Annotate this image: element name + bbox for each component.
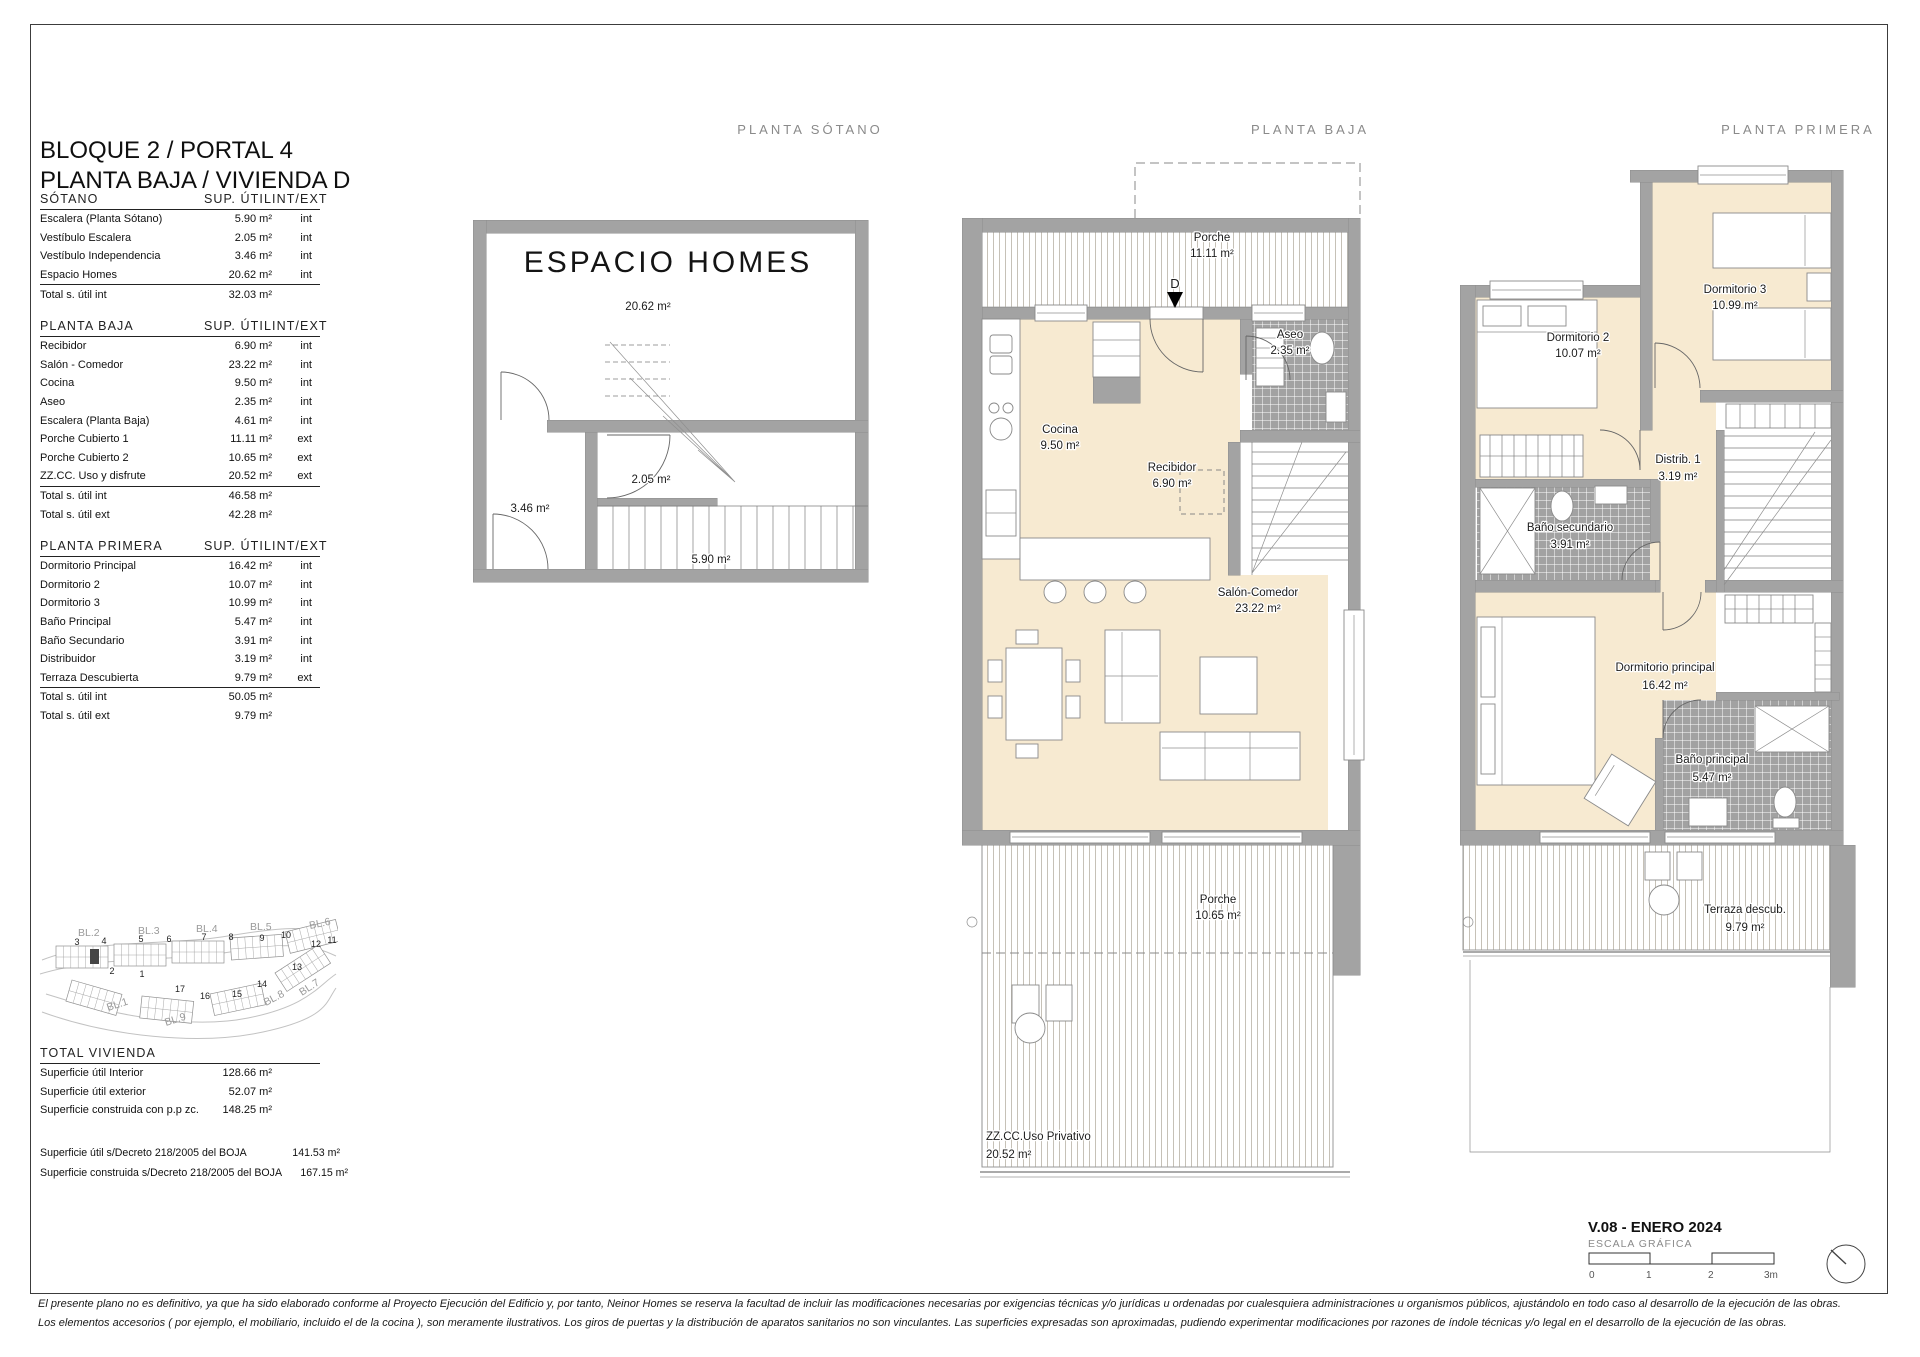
table-total-row: Total s. útil ext42.28 m²	[40, 505, 320, 524]
room-label-porche1: Porche	[1194, 232, 1230, 244]
block-label: BL.8	[262, 988, 287, 1009]
area-espacio-homes: 20.62 m²	[625, 301, 671, 313]
room-label-distrib: Distrib. 1	[1655, 454, 1700, 466]
svg-text:3: 3	[74, 937, 79, 947]
section-header-primera: PLANTA PRIMERA SUP. ÚTIL INT/EXT	[40, 539, 320, 557]
primera-closets	[1725, 404, 1831, 692]
block-label: BL.2	[78, 927, 100, 939]
section-header-baja: PLANTA BAJA SUP. ÚTIL INT/EXT	[40, 319, 320, 337]
block-label: BL.4	[196, 923, 218, 935]
room-label-espacio-homes: ESPACIO HOMES	[524, 246, 813, 279]
table-row: Porche Cubierto 111.11 m²ext	[40, 430, 320, 449]
table-row: Espacio Homes20.62 m²int	[40, 266, 320, 285]
room-area-recibidor: 6.90 m²	[1153, 478, 1192, 490]
room-label-aseo: Aseo	[1277, 329, 1303, 341]
room-label-porche2: Porche	[1200, 894, 1236, 906]
room-area-bano-sec: 3.91 m²	[1551, 539, 1590, 551]
section-header-total: TOTAL VIVIENDA	[40, 1046, 320, 1064]
room-area-porche1: 11.11 m²	[1190, 248, 1234, 260]
table-row: Porche Cubierto 210.65 m²ext	[40, 449, 320, 468]
table-row: ZZ.CC. Uso y disfrute20.52 m²ext	[40, 467, 320, 486]
svg-text:1: 1	[139, 969, 144, 979]
room-area-distrib: 3.19 m²	[1659, 471, 1698, 483]
room-area-dorm-ppal: 16.42 m²	[1642, 680, 1688, 692]
room-area-salon: 23.22 m²	[1235, 603, 1281, 615]
room-label-terraza: Terraza descub.	[1704, 904, 1786, 916]
table-row: Dormitorio 210.07 m²int	[40, 576, 320, 595]
area-vestibulo-independencia: 3.46 m²	[511, 503, 550, 515]
total-vivienda-table: TOTAL VIVIENDA Superficie útil Interior1…	[40, 1046, 320, 1120]
room-label-dorm2: Dormitorio 2	[1547, 332, 1610, 344]
sotano-stair-dashes	[605, 342, 735, 482]
table-row: Baño Principal5.47 m²int	[40, 613, 320, 632]
room-label-salon: Salón-Comedor	[1218, 587, 1299, 599]
table-row: Superficie útil exterior52.07 m²	[40, 1083, 320, 1102]
sheet-title: BLOQUE 2 / PORTAL 4 PLANTA BAJA / VIVIEN…	[40, 136, 350, 196]
section-header-sotano: SÓTANO SUP. ÚTIL INT/EXT	[40, 192, 320, 210]
table-row: Escalera (Planta Baja)4.61 m²int	[40, 411, 320, 430]
plan-header-baja: PLANTA BAJA	[1195, 122, 1425, 137]
section-title: SÓTANO	[40, 192, 202, 206]
table-row: Recibidor6.90 m²int	[40, 337, 320, 356]
col-sup-util: SUP. ÚTIL	[202, 539, 272, 553]
table-row: Aseo2.35 m²int	[40, 393, 320, 412]
plan-header-sotano: PLANTA SÓTANO	[695, 122, 925, 137]
table-total-row: Total s. útil int50.05 m²	[40, 687, 320, 707]
room-area-cocina: 9.50 m²	[1041, 440, 1080, 452]
room-area-zzcc: 20.52 m²	[986, 1149, 1032, 1161]
svg-text:14: 14	[257, 979, 267, 989]
svg-text:11: 11	[327, 935, 336, 945]
scale-tick-3: 3m	[1764, 1270, 1778, 1281]
primera-stairs	[1724, 432, 1831, 585]
svg-text:10: 10	[281, 930, 291, 940]
room-area-porche2: 10.65 m²	[1195, 910, 1241, 922]
dorm2-furniture	[1477, 300, 1597, 477]
table-row: Vestíbulo Independencia3.46 m²int	[40, 247, 320, 266]
table-total-row: Total s. útil int32.03 m²	[40, 284, 320, 304]
table-row: Dormitorio Principal16.42 m²int	[40, 557, 320, 576]
table-row: Superficie construida con p.p zc.148.25 …	[40, 1101, 320, 1120]
svg-text:4: 4	[101, 936, 106, 946]
room-area-aseo: 2.35 m²	[1271, 345, 1310, 357]
table-row: Terraza Descubierta9.79 m²ext	[40, 668, 320, 687]
table-row: Vestíbulo Escalera2.05 m²int	[40, 229, 320, 248]
svg-text:9: 9	[259, 933, 264, 943]
svg-text:2: 2	[109, 966, 114, 976]
version-label: V.08 - ENERO 2024	[1588, 1219, 1788, 1236]
scale-tick-1: 1	[1646, 1270, 1652, 1281]
north-compass-icon	[1822, 1240, 1870, 1288]
svg-text:8: 8	[228, 932, 233, 942]
table-row: Superficie útil s/Decreto 218/2005 del B…	[40, 1143, 340, 1163]
col-sup-util: SUP. ÚTIL	[202, 192, 272, 206]
title-line-1: BLOQUE 2 / PORTAL 4	[40, 136, 350, 166]
table-row: Salón - Comedor23.22 m²int	[40, 356, 320, 375]
room-area-dorm2: 10.07 m²	[1555, 348, 1601, 360]
room-area-dorm3: 10.99 m²	[1712, 300, 1758, 312]
area-tables: SÓTANO SUP. ÚTIL INT/EXT Escalera (Plant…	[40, 192, 320, 725]
sotano-stairs	[597, 506, 868, 569]
svg-text:13: 13	[292, 962, 302, 972]
col-int-ext: INT/EXT	[272, 192, 320, 206]
table-row: Cocina9.50 m²int	[40, 374, 320, 393]
room-label-dorm-ppal: Dormitorio principal	[1615, 662, 1714, 674]
scale-tick-2: 2	[1708, 1270, 1714, 1281]
plan-header-primera: PLANTA PRIMERA	[1683, 122, 1913, 137]
room-label-recibidor: Recibidor	[1148, 462, 1197, 474]
table-row: Dormitorio 310.99 m²int	[40, 594, 320, 613]
table-total-row: Total s. útil ext9.79 m²	[40, 707, 320, 726]
scale-caption: ESCALA GRÁFICA	[1588, 1238, 1788, 1250]
highlighted-unit	[90, 949, 99, 964]
room-area-terraza: 9.79 m²	[1726, 922, 1765, 934]
col-int-ext: INT/EXT	[272, 539, 320, 553]
svg-text:17: 17	[175, 984, 185, 994]
sotano-doors	[493, 372, 670, 569]
room-area-bano-ppal: 5.47 m²	[1693, 772, 1732, 784]
floorplan-sotano: ESPACIO HOMES 20.62 m² 3.46 m² 2.05 m² 5…	[455, 150, 885, 600]
svg-text:15: 15	[232, 989, 242, 999]
room-label-cocina: Cocina	[1042, 424, 1078, 436]
plan-sheet: { "page": { "title_line1": "BLOQUE 2 / P…	[0, 0, 1920, 1357]
section-title: PLANTA PRIMERA	[40, 539, 202, 553]
block-label: BL.5	[250, 921, 272, 933]
table-row: Distribuidor3.19 m²int	[40, 650, 320, 669]
floorplan-primera: Dormitorio 3 10.99 m² Dormitorio 2 10.07…	[1450, 140, 1870, 1170]
room-label-bano-sec: Baño secundario	[1527, 522, 1613, 534]
site-location-map: BL.2 BL.3 BL.4 BL.5 BL.6 BL.1 BL.9 BL.8 …	[38, 916, 338, 1048]
footer-disclaimer-line2: Los elementos accesorios ( por ejemplo, …	[38, 1317, 1888, 1329]
room-label-zzcc: ZZ.CC.Uso Privativo	[986, 1131, 1091, 1143]
room-label-dorm3: Dormitorio 3	[1704, 284, 1767, 296]
version-scale-block: V.08 - ENERO 2024 ESCALA GRÁFICA 0 1 2 3…	[1588, 1219, 1788, 1289]
scale-tick-0: 0	[1589, 1270, 1595, 1281]
col-sup-util: SUP. ÚTIL	[202, 319, 272, 333]
svg-text:12: 12	[311, 939, 321, 949]
room-label-bano-ppal: Baño principal	[1676, 754, 1749, 766]
floorplan-baja: D	[950, 140, 1370, 1200]
area-escalera-sotano: 5.90 m²	[692, 554, 731, 566]
area-vestibulo-escalera: 2.05 m²	[632, 474, 671, 486]
col-int-ext: INT/EXT	[272, 319, 320, 333]
svg-text:6: 6	[166, 934, 171, 944]
section-title: TOTAL VIVIENDA	[40, 1046, 202, 1060]
entry-letter: D	[1170, 276, 1179, 291]
footer-disclaimer-line1: El presente plano no es definitivo, ya q…	[38, 1298, 1888, 1310]
decreto-table: Superficie útil s/Decreto 218/2005 del B…	[40, 1143, 340, 1183]
section-title: PLANTA BAJA	[40, 319, 202, 333]
table-row: Superficie útil Interior128.66 m²	[40, 1064, 320, 1083]
svg-text:16: 16	[200, 991, 210, 1001]
table-total-row: Total s. útil int46.58 m²	[40, 486, 320, 506]
table-row: Superficie construida s/Decreto 218/2005…	[40, 1163, 340, 1183]
svg-text:5: 5	[138, 934, 143, 944]
table-row: Escalera (Planta Sótano)5.90 m²int	[40, 210, 320, 229]
scale-bar: 0 1 2 3m	[1588, 1250, 1788, 1284]
svg-text:7: 7	[201, 932, 206, 942]
table-row: Baño Secundario3.91 m²int	[40, 631, 320, 650]
